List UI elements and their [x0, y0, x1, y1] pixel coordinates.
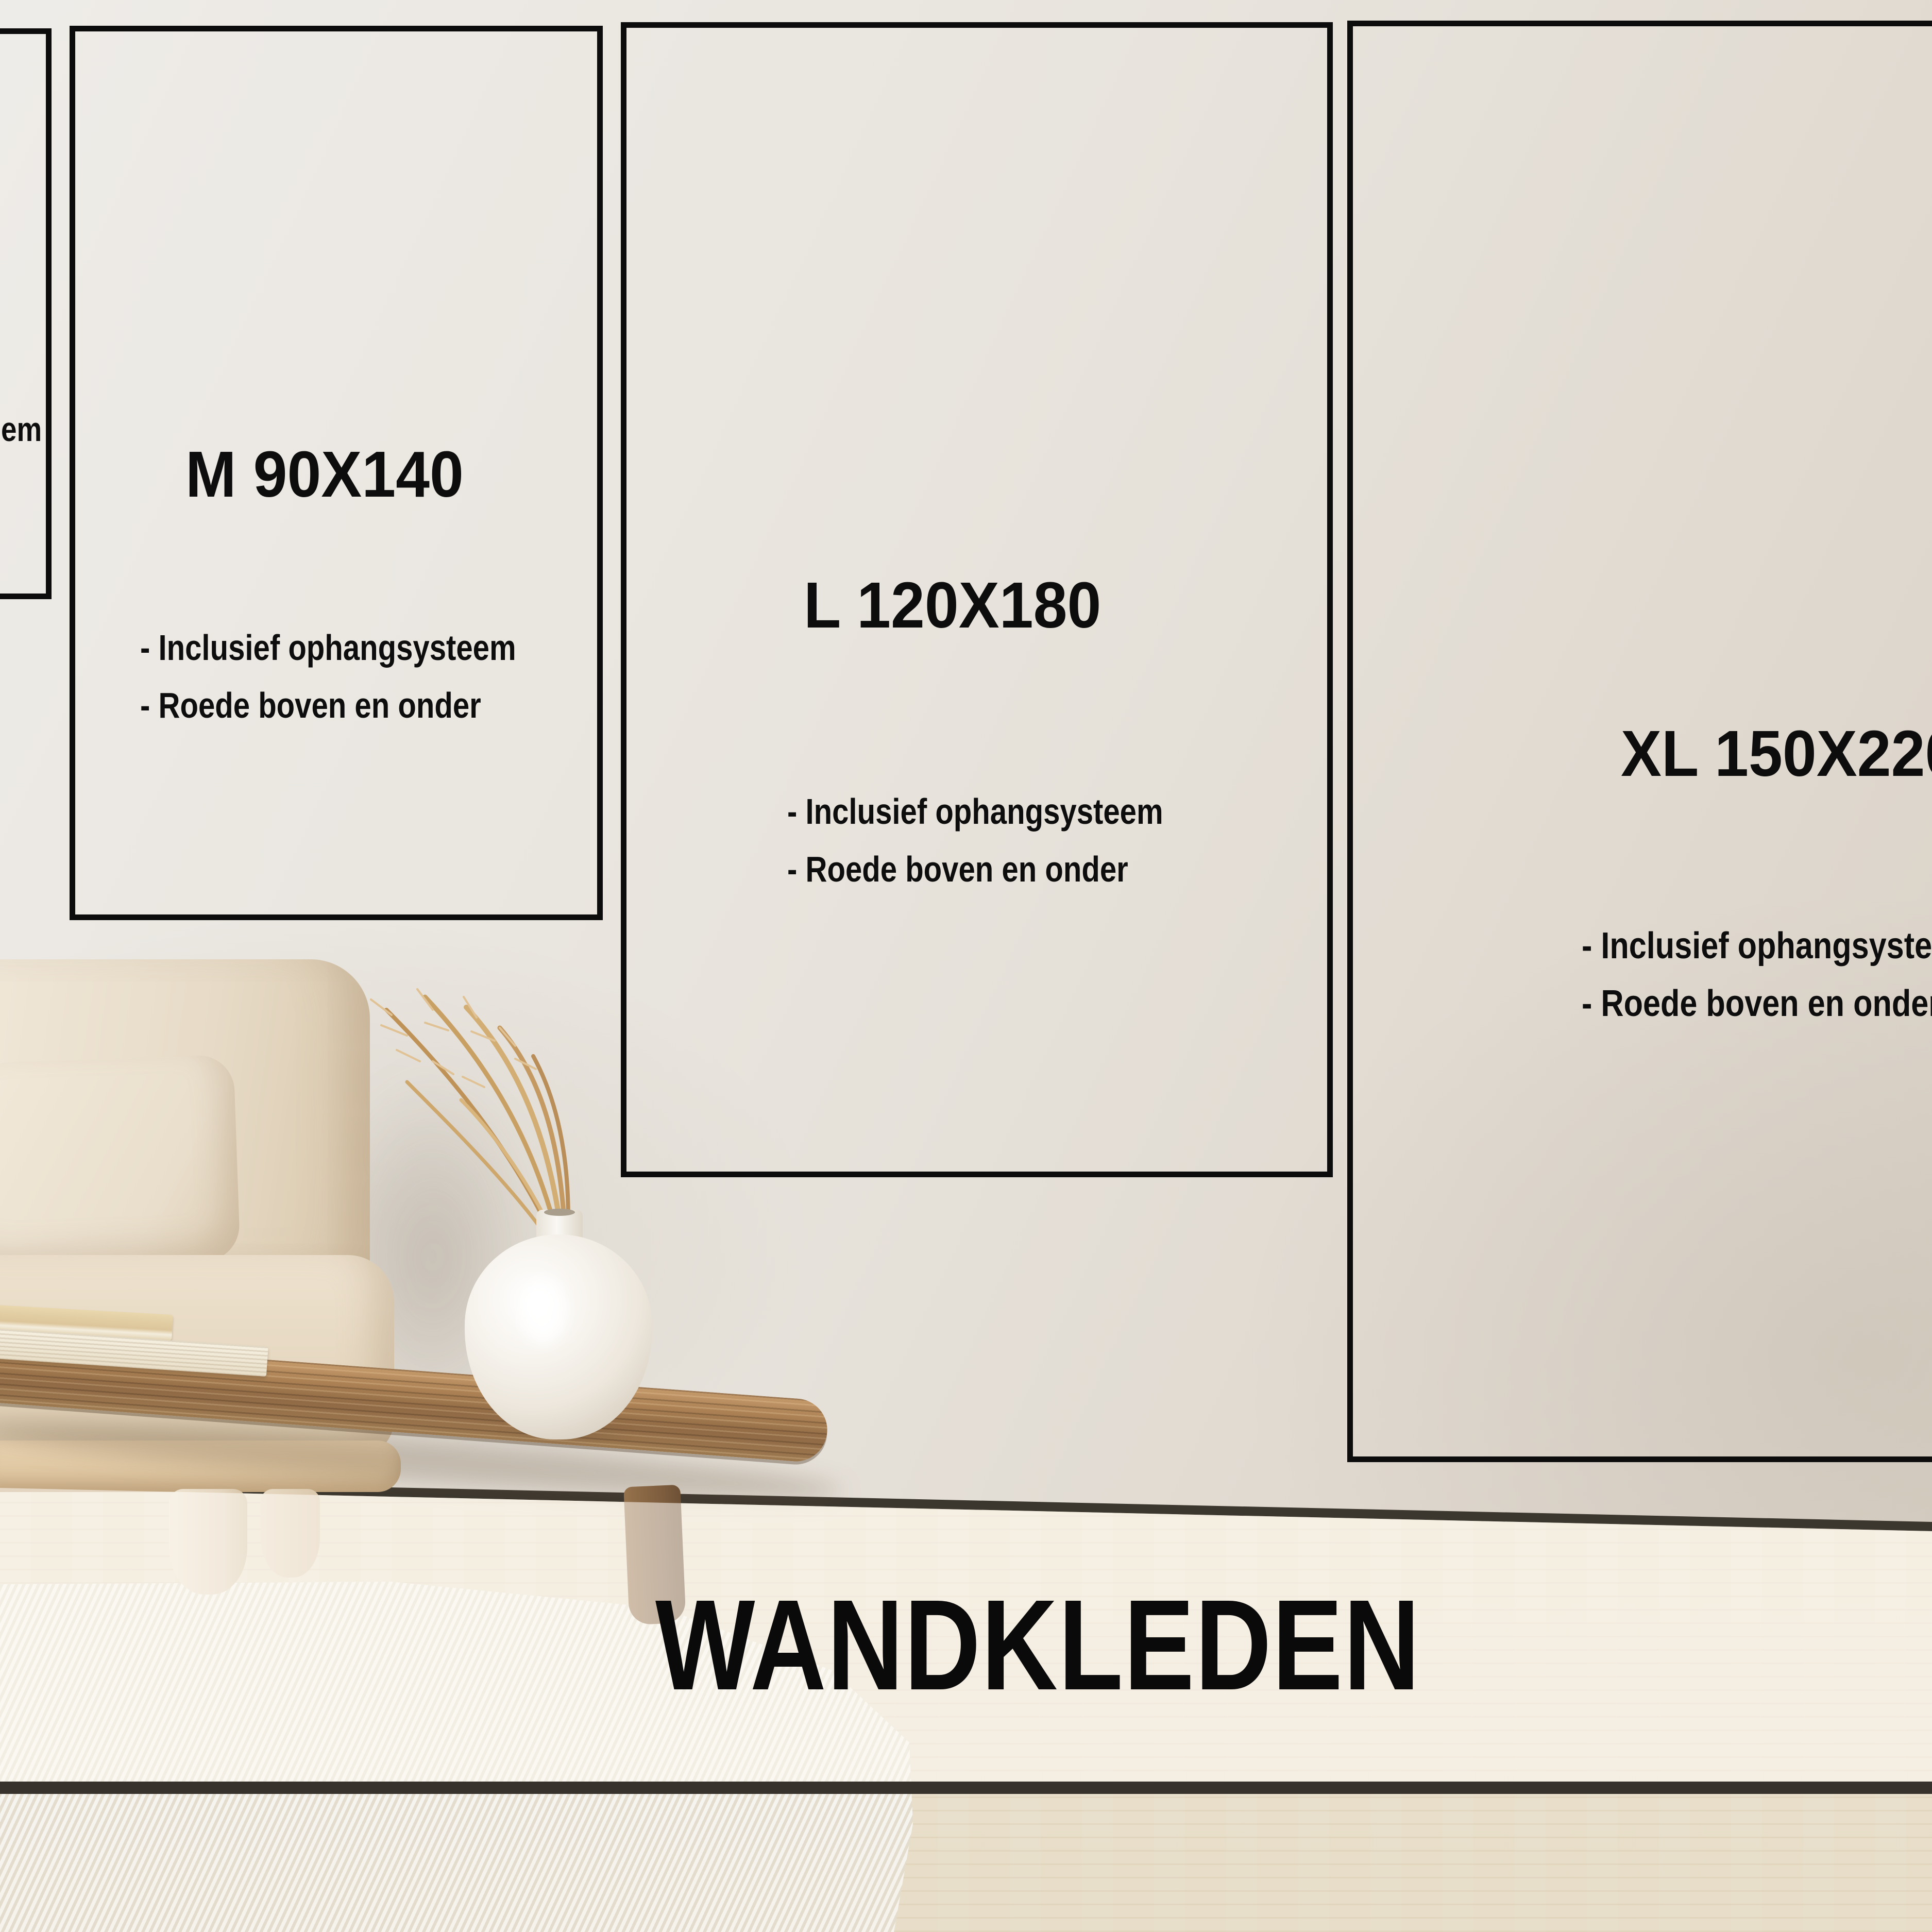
- vase-highlight: [520, 1278, 567, 1345]
- pampas-grass: [330, 979, 629, 1267]
- band-bottom-line: [0, 1782, 1932, 1794]
- size-m-feature-1: - Inclusief ophangsysteem: [140, 630, 516, 666]
- size-outline-s-clipped: [0, 28, 52, 599]
- size-xl-title: XL 150X220: [1621, 721, 1932, 786]
- size-xl-feature-1: - Inclusief ophangsysteem: [1582, 927, 1932, 964]
- size-xl-feature-2: - Roede boven en onder: [1582, 985, 1932, 1022]
- vase-mouth: [544, 1209, 575, 1216]
- size-m-feature-2: - Roede boven en onder: [140, 687, 481, 723]
- size-m-title: M 90X140: [185, 442, 464, 507]
- size-l-title: L 120X180: [804, 573, 1101, 638]
- size-l-feature-2: - Roede boven en onder: [787, 851, 1128, 887]
- size-s-text-fragment: em: [1, 412, 42, 446]
- sofa-pillow: [0, 1054, 241, 1269]
- size-l-feature-1: - Inclusief ophangsysteem: [787, 793, 1163, 829]
- banner-title: WANDKLEDEN: [655, 1581, 1421, 1709]
- size-guide-mockup: em M 90X140 - Inclusief ophangsysteem - …: [0, 0, 1932, 1932]
- ceramic-vase: [465, 1234, 652, 1439]
